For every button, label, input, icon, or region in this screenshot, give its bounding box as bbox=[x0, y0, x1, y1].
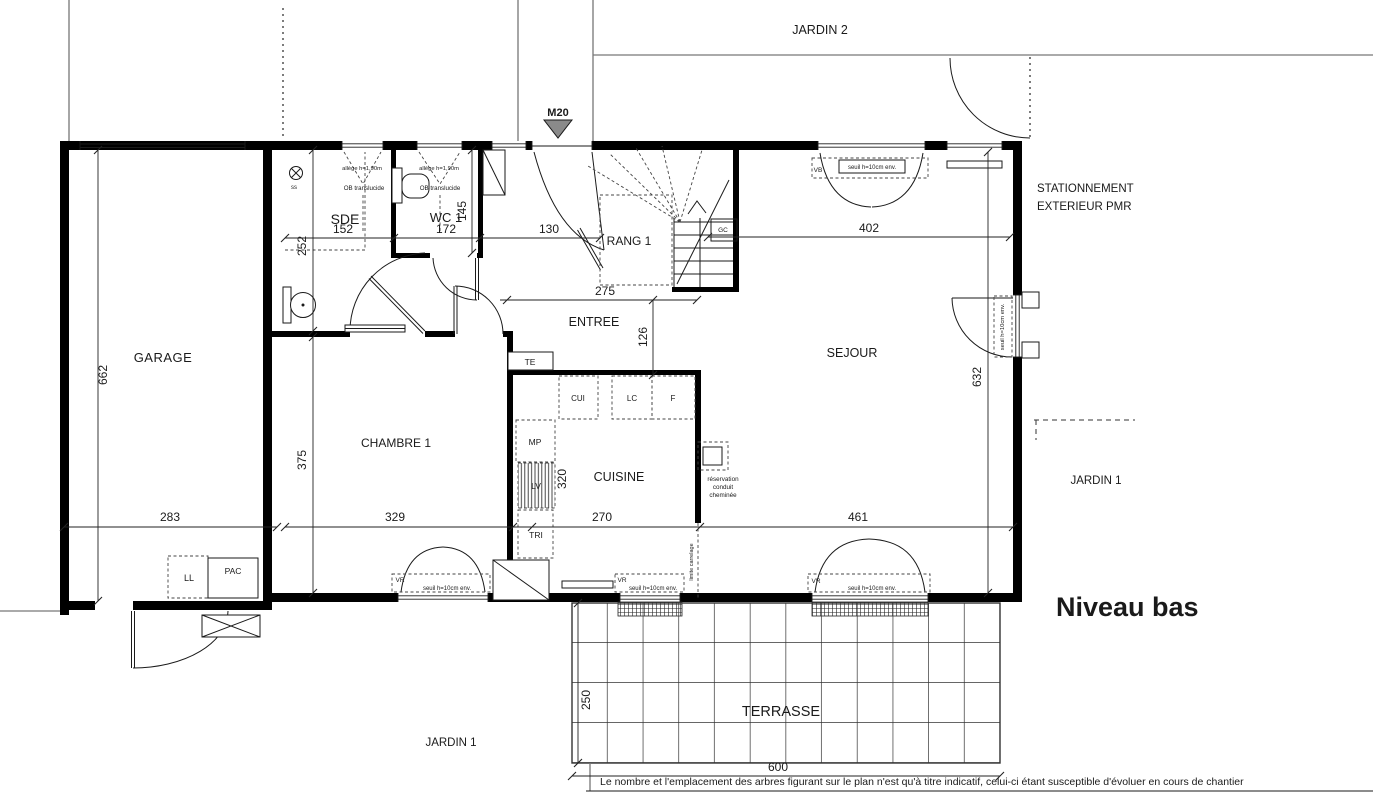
room-chambre1: CHAMBRE 1 bbox=[361, 436, 431, 450]
reservation-label-3: cheminée bbox=[709, 492, 737, 499]
ll-label: LL bbox=[184, 573, 194, 583]
dim-270: 270 bbox=[592, 510, 612, 524]
room-cuisine: CUISINE bbox=[594, 470, 645, 484]
dim-275: 275 bbox=[595, 284, 615, 298]
chimney-reservation bbox=[698, 442, 728, 470]
seuil-label-sejour: seuil h=10cm env. bbox=[848, 586, 896, 592]
dim-126: 126 bbox=[636, 327, 650, 347]
m20-marker bbox=[544, 120, 572, 138]
dim-320: 320 bbox=[555, 469, 569, 489]
vb-label: VB bbox=[814, 167, 823, 174]
jardin2-label: JARDIN 2 bbox=[792, 23, 848, 37]
ob-label-sde: OB translucide bbox=[344, 185, 385, 192]
vr-label-chambre: VR bbox=[395, 577, 404, 584]
mp-label: MP bbox=[529, 437, 542, 447]
seuil-label-top: seuil h=10cm env. bbox=[848, 165, 896, 171]
vr-label-cuisine: VR bbox=[617, 577, 626, 584]
room-rang1: RANG 1 bbox=[607, 234, 652, 248]
sejour-top-window bbox=[947, 141, 1002, 168]
seuil-label-chambre: seuil h=10cm env. bbox=[423, 586, 471, 592]
te-label: TE bbox=[525, 357, 536, 367]
pac-label: PAC bbox=[225, 566, 242, 576]
openings bbox=[80, 141, 1039, 616]
exterior-walls bbox=[60, 141, 1022, 615]
floor-plan: GC bbox=[0, 0, 1373, 795]
dim-662: 662 bbox=[96, 365, 110, 385]
dim-152: 152 bbox=[333, 222, 353, 236]
sde-sink bbox=[283, 287, 316, 323]
rang-door bbox=[578, 228, 604, 270]
dim-252: 252 bbox=[295, 236, 309, 256]
sejour-right-door bbox=[952, 292, 1039, 358]
dim-329: 329 bbox=[385, 510, 405, 524]
exterior-unit bbox=[202, 615, 260, 637]
garage-equipment bbox=[168, 556, 260, 637]
ss-symbol bbox=[290, 167, 303, 180]
gc-label: GC bbox=[718, 227, 728, 234]
room-sejour: SEJOUR bbox=[827, 346, 878, 360]
stair-window bbox=[492, 141, 526, 150]
dim-172: 172 bbox=[436, 222, 456, 236]
f-label: F bbox=[671, 394, 676, 403]
fixed-glazing-box bbox=[493, 560, 549, 600]
reservation-label-2: conduit bbox=[713, 484, 734, 491]
allege-label-wc: allège h=1,90m bbox=[419, 166, 459, 172]
sejour-top-french-door bbox=[812, 141, 928, 207]
chambre-french-door bbox=[392, 547, 490, 602]
dim-600: 600 bbox=[768, 760, 788, 774]
tri-label: TRI bbox=[529, 530, 543, 540]
stationnement-label-1: STATIONNEMENT bbox=[1037, 183, 1134, 195]
room-garage: GARAGE bbox=[134, 350, 193, 365]
dim-250: 250 bbox=[579, 690, 593, 710]
dim-402: 402 bbox=[859, 221, 879, 235]
dim-461: 461 bbox=[848, 510, 868, 524]
wc-door bbox=[433, 258, 479, 300]
dim-632: 632 bbox=[970, 367, 984, 387]
jardin1-bottom-label: JARDIN 1 bbox=[425, 737, 476, 749]
duct-box bbox=[483, 150, 505, 195]
m20-label: M20 bbox=[547, 107, 568, 119]
sde-radiator bbox=[345, 325, 405, 332]
vr-label-sejour: VR bbox=[811, 578, 820, 585]
room-entree: ENTREE bbox=[569, 315, 620, 329]
terrasse-area bbox=[572, 603, 1373, 791]
ss-label: ss bbox=[291, 185, 297, 191]
dim-375: 375 bbox=[295, 450, 309, 470]
dim-283: 283 bbox=[160, 510, 180, 524]
jardin1-right-label: JARDIN 1 bbox=[1070, 475, 1121, 487]
lv-label: LV bbox=[531, 481, 541, 491]
seuil-label-cuisine: seuil h=10cm env. bbox=[629, 586, 677, 592]
site-boundaries bbox=[0, 0, 1373, 668]
dim-145: 145 bbox=[455, 201, 469, 221]
interior-walls bbox=[272, 141, 739, 593]
seuil-label-right-door: seuil h=10cm env. bbox=[1000, 303, 1006, 350]
cui-label: CUI bbox=[571, 394, 585, 403]
page-title: Niveau bas bbox=[1056, 592, 1199, 622]
kitchen-radiator bbox=[562, 581, 613, 588]
garden-gate-arc-top bbox=[950, 58, 1030, 138]
winder-dashes bbox=[588, 146, 702, 222]
terrasse-label: TERRASSE bbox=[742, 704, 820, 720]
dim-130: 130 bbox=[539, 222, 559, 236]
reservation-label-1: réservation bbox=[707, 476, 739, 483]
ob-label-wc: OB translucide bbox=[420, 185, 461, 192]
stationnement-label-2: EXTERIEUR PMR bbox=[1037, 201, 1132, 213]
disclaimer-text: Le nombre et l'emplacement des arbres fi… bbox=[600, 776, 1244, 788]
jardin1-limit-dashed bbox=[1034, 420, 1135, 440]
stairs: GC bbox=[588, 146, 737, 287]
allege-label-sde: allège h=1,90m bbox=[342, 166, 382, 172]
lc-label: LC bbox=[627, 394, 637, 403]
limite-carrelage-label: limite carrelage bbox=[689, 543, 695, 580]
sde-door bbox=[350, 253, 425, 334]
